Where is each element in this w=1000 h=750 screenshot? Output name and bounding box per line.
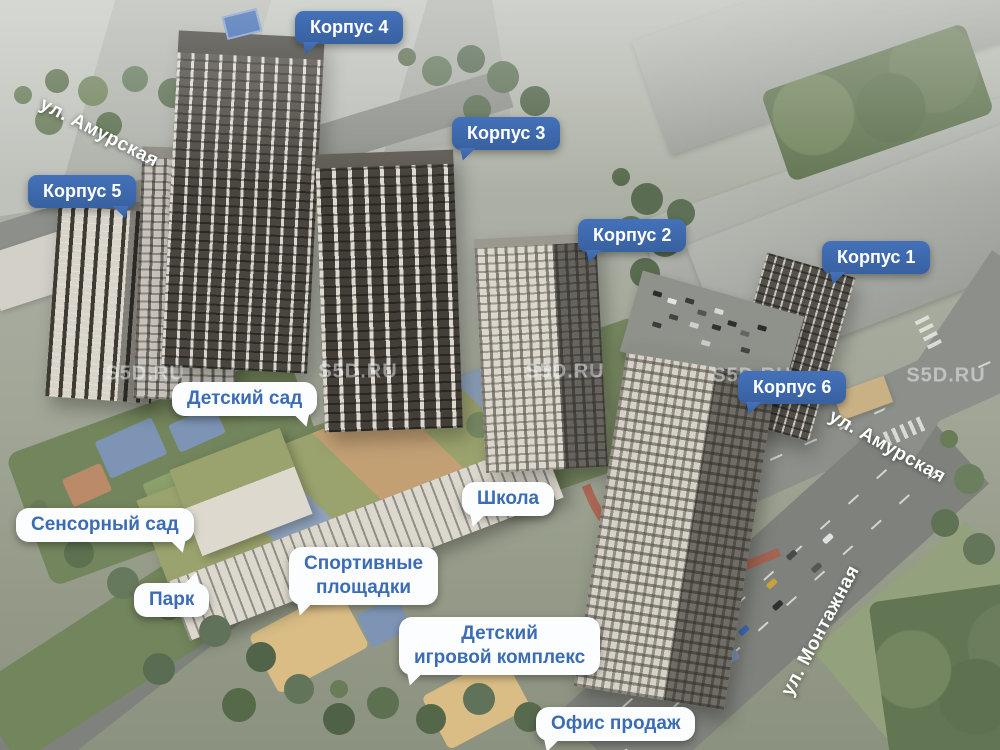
tree-cluster xyxy=(940,430,958,448)
tower-facade xyxy=(316,164,463,433)
tree-cluster xyxy=(330,680,348,698)
watermark: S5D.RU xyxy=(105,363,184,386)
watermark: S5D.RU xyxy=(906,365,985,388)
parked-cars xyxy=(652,290,662,297)
building-label-korpus-4[interactable]: Корпус 4 xyxy=(295,11,403,44)
tower-korpus-3 xyxy=(315,150,463,433)
amenity-label-park[interactable]: Парк xyxy=(134,583,209,617)
masterplan-render: S5D.RU S5D.RU S5D.RU S5D.RU S5D.RU ул. А… xyxy=(0,0,1000,750)
tree-block-bottom-right xyxy=(868,579,1000,750)
amenity-label-detsky-sad[interactable]: Детский сад xyxy=(172,382,317,416)
amenity-label-play[interactable]: Детский игровой комплекс xyxy=(399,617,600,675)
building-label-korpus-6[interactable]: Корпус 6 xyxy=(738,371,846,404)
building-label-korpus-5[interactable]: Корпус 5 xyxy=(28,175,136,208)
amenity-label-sport[interactable]: Спортивные площадки xyxy=(289,547,438,605)
watermark: S5D.RU xyxy=(318,361,397,384)
amenity-label-sensorny-sad[interactable]: Сенсорный сад xyxy=(16,508,194,542)
amenity-label-sales[interactable]: Офис продаж xyxy=(536,707,695,741)
building-label-korpus-1[interactable]: Корпус 1 xyxy=(822,241,930,274)
tower-facade xyxy=(474,242,608,473)
amenity-label-shkola[interactable]: Школа xyxy=(462,482,554,516)
watermark: S5D.RU xyxy=(525,361,604,384)
tower-korpus-2 xyxy=(474,233,608,473)
building-label-korpus-3[interactable]: Корпус 3 xyxy=(452,117,560,150)
building-label-korpus-2[interactable]: Корпус 2 xyxy=(578,219,686,252)
